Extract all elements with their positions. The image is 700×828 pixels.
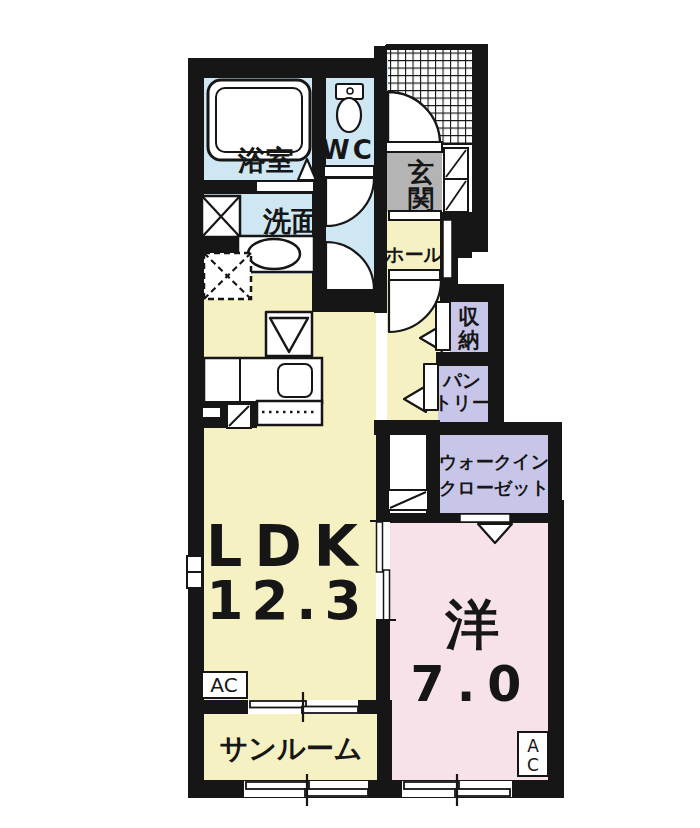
svg-text:トリー: トリー xyxy=(434,392,490,413)
toilet xyxy=(336,84,363,132)
svg-text:納: 納 xyxy=(458,328,480,352)
washroom-label: 洗面 xyxy=(262,205,319,238)
floor-plan-svg: 浴室 WC 洗面 玄 関 ホール 収 納 パン トリー ウォークイン クローゼッ… xyxy=(0,0,700,828)
svg-text:C: C xyxy=(527,755,539,775)
svg-text:クローゼット: クローゼット xyxy=(439,477,549,498)
hall-opening-sill xyxy=(389,270,440,280)
western-room-label: 洋 xyxy=(444,593,499,656)
sunroom-label: サンルーム xyxy=(220,732,363,765)
bathroom-label: 浴室 xyxy=(237,144,294,177)
washing-machine-space xyxy=(202,196,240,237)
svg-text:ウォークイン: ウォークイン xyxy=(439,451,549,472)
ldk-left-window xyxy=(187,556,202,588)
ldk-size-label: 12.3 xyxy=(207,570,370,631)
floor-plan-image: 浴室 WC 洗面 玄 関 ホール 収 納 パン トリー ウォークイン クローゼッ… xyxy=(0,0,700,828)
svg-text:収: 収 xyxy=(459,305,480,329)
entrance-label: 玄 関 xyxy=(407,157,434,214)
svg-text:玄: 玄 xyxy=(407,157,434,187)
hall-side-window xyxy=(443,220,452,278)
walk-in-closet-floor xyxy=(440,435,548,513)
refrigerator-space-dashed xyxy=(204,253,251,299)
western-room-size-label: 7.0 xyxy=(411,656,534,713)
refrigerator-symbol xyxy=(266,312,312,356)
western-closet-panel xyxy=(388,490,428,510)
svg-text:A: A xyxy=(527,736,539,756)
entrance-sill xyxy=(386,142,442,152)
svg-text:関: 関 xyxy=(408,184,434,214)
kitchen-counter xyxy=(196,358,322,428)
svg-text:パン: パン xyxy=(442,370,481,391)
wic-opening xyxy=(460,514,510,522)
storage-door-panel xyxy=(436,302,450,350)
wc-label: WC xyxy=(321,135,375,165)
wc-door-sill xyxy=(324,166,374,177)
hall-label: ホール xyxy=(384,243,443,265)
bathroom-door-sill xyxy=(256,181,314,192)
storage-label: 収 納 xyxy=(458,305,480,352)
shoe-cabinet xyxy=(444,148,468,212)
ac-ldk-label: AC xyxy=(210,673,237,697)
ac-western-label: A C xyxy=(527,736,539,775)
